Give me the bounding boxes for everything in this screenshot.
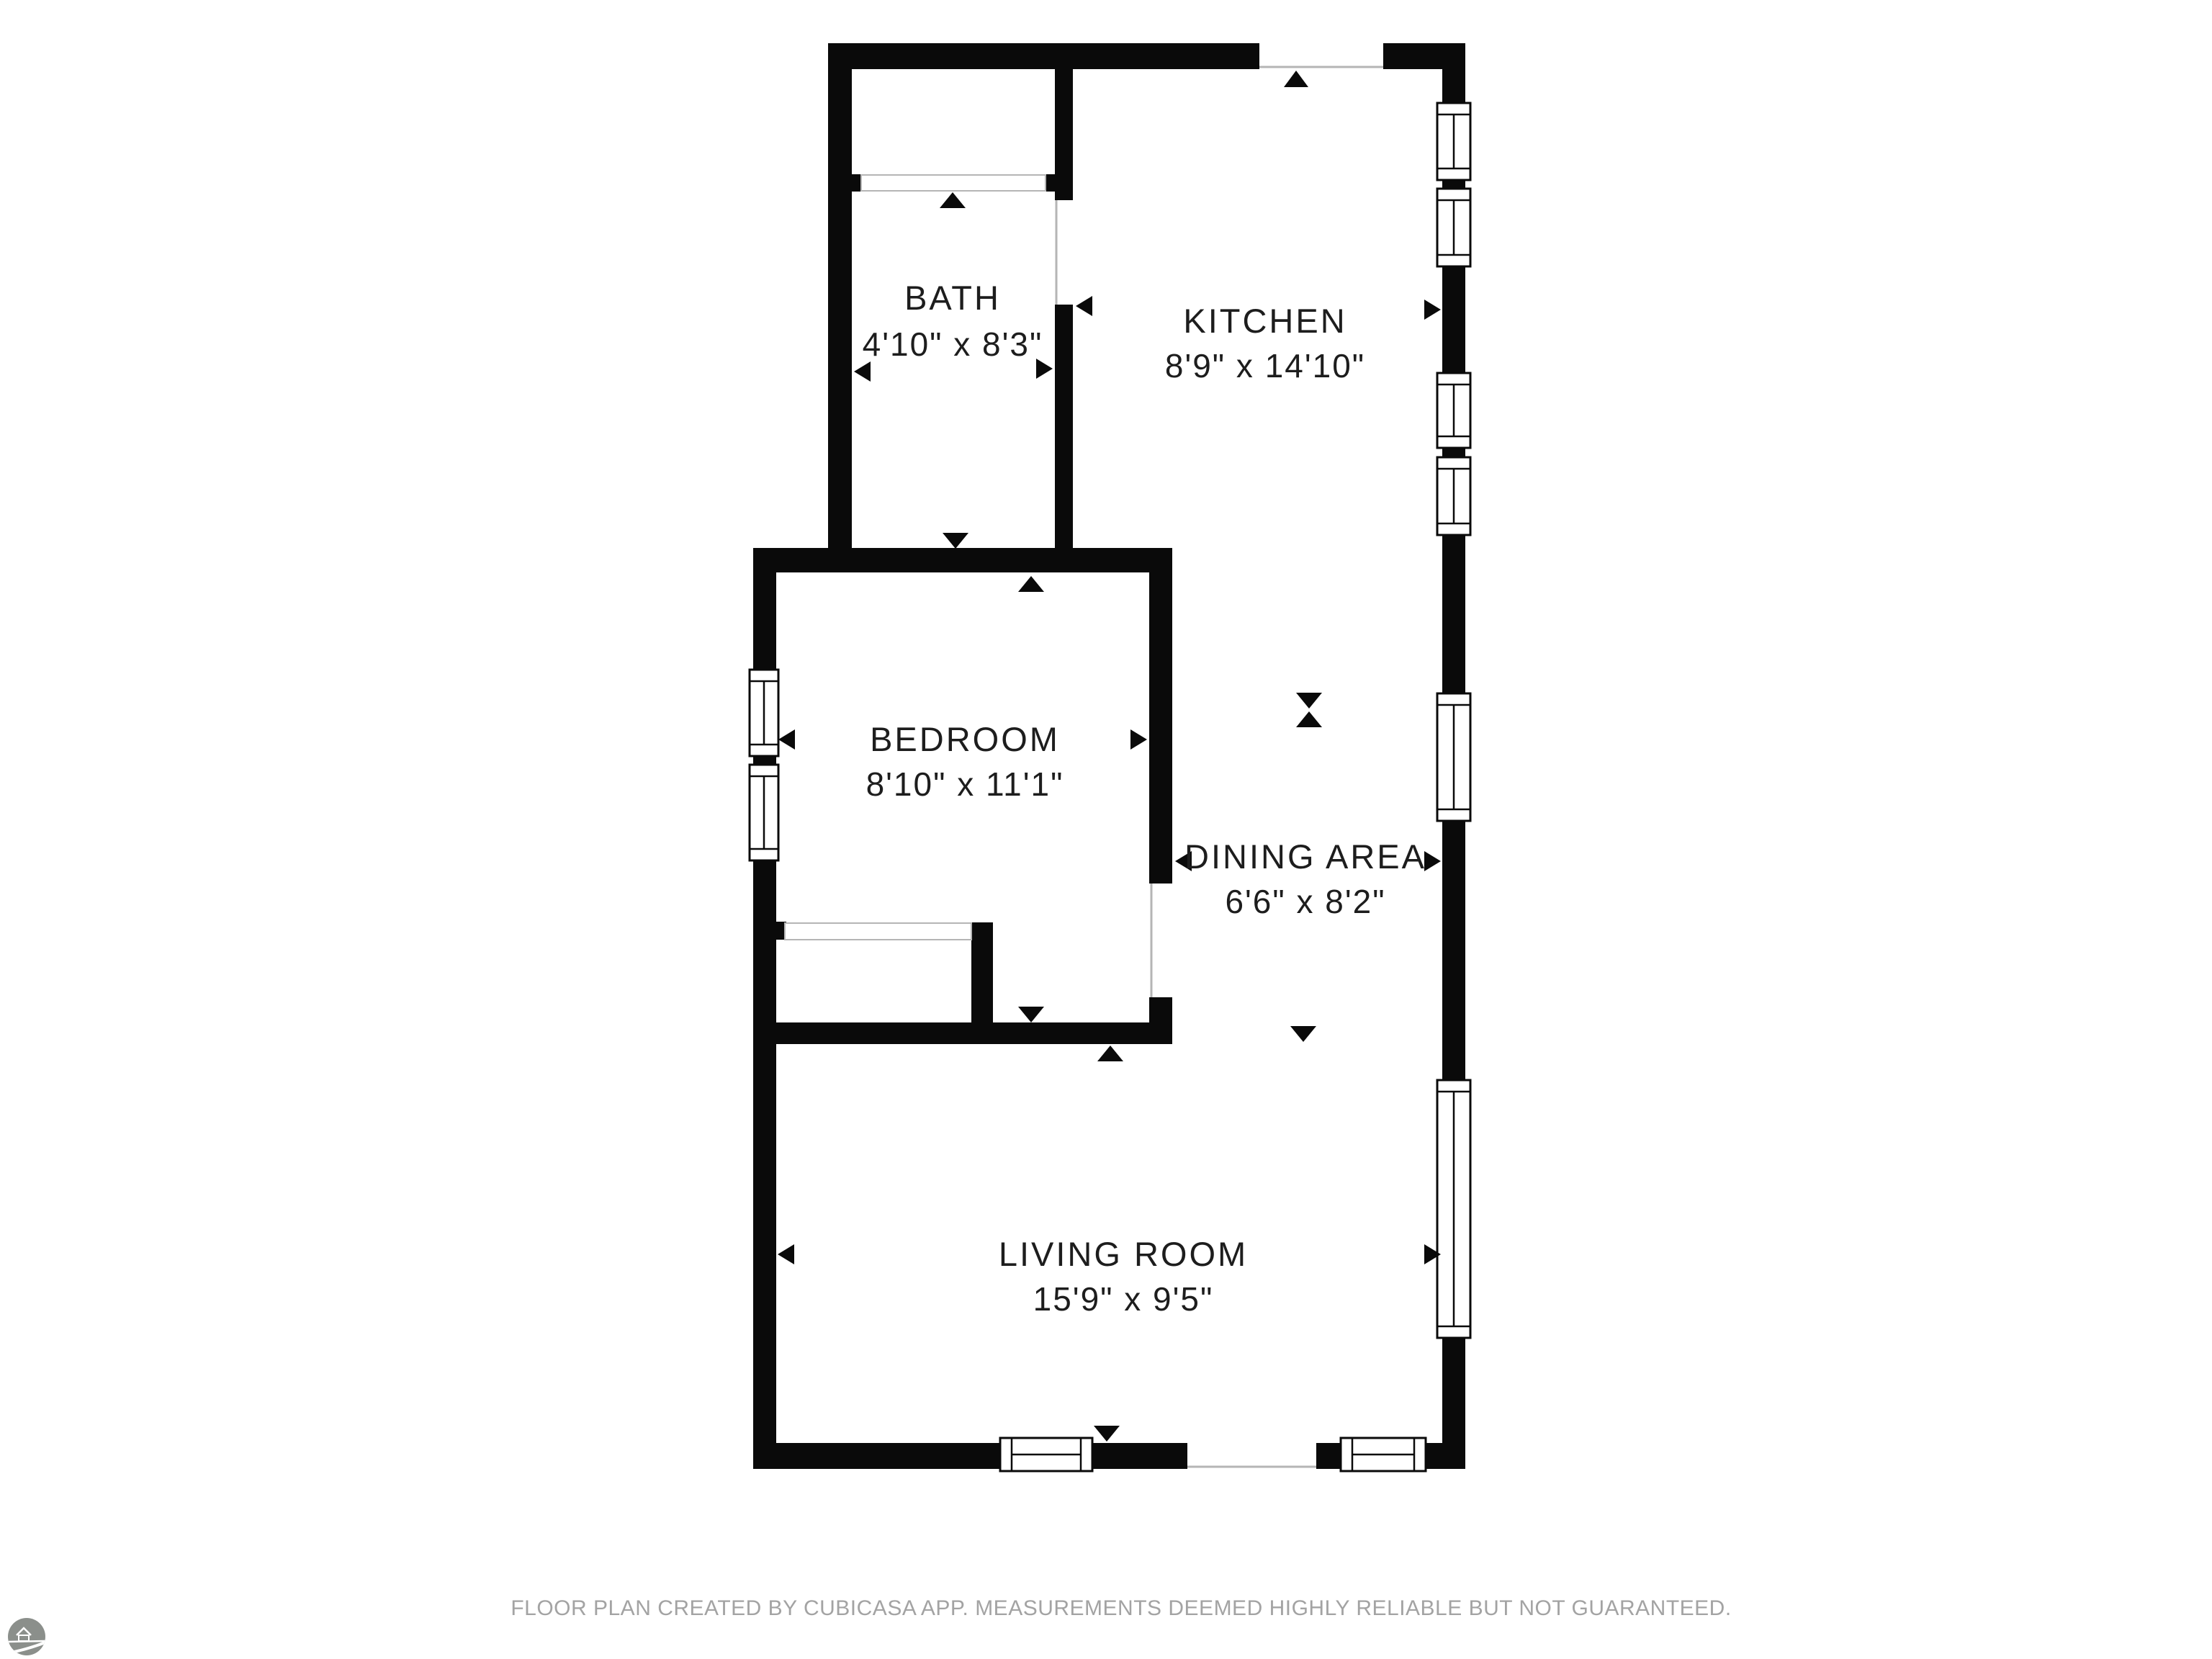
room-label-kitchen: KITCHEN [1183, 302, 1346, 340]
dimension-arrow-bedroom-left-icon [778, 729, 795, 750]
wall-bath-left [828, 43, 852, 572]
door-arrow-bedroom-top-icon [1018, 576, 1044, 592]
room-dims-kitchen: 8'9" x 14'10" [1165, 347, 1365, 385]
wall-bath-divider-left-stub [852, 174, 861, 192]
room-labels: BATH 4'10" x 8'3" KITCHEN 8'9" x 14'10" … [863, 279, 1426, 1318]
door-arrow-bottom-entry-icon [1094, 1426, 1120, 1442]
door-arrow-bath-closet-icon [940, 192, 966, 208]
dimension-arrow-living-left-icon [778, 1244, 794, 1264]
wall-bedroom-bottom [753, 1022, 1172, 1044]
door-arrow-bath-entry-icon [943, 533, 968, 549]
wall-bedroom-top [753, 548, 1172, 572]
window-living-bottom-2 [1341, 1438, 1426, 1471]
window-bedroom-left-1 [750, 670, 778, 756]
window-living-bottom-1 [1000, 1438, 1092, 1471]
dimension-arrow-bedroom-right-icon [1130, 729, 1147, 750]
zone-divider-dining-living-icon [1290, 1026, 1316, 1042]
floor-plan-canvas: BATH 4'10" x 8'3" KITCHEN 8'9" x 14'10" … [0, 0, 2212, 1659]
wall-bottom-left-segment [753, 1443, 1187, 1469]
room-dims-dining-area: 6'6" x 8'2" [1225, 883, 1385, 920]
window-kitchen-right-2 [1437, 189, 1470, 266]
dimension-arrow-kitchen-left-icon [1076, 296, 1092, 316]
window-kitchen-right-1 [1437, 103, 1470, 180]
window-living-right [1437, 1080, 1470, 1338]
zone-divider-kitchen-dining-down-icon [1296, 693, 1322, 709]
room-label-bath: BATH [904, 279, 1001, 317]
wall-closet-right [971, 922, 993, 1044]
cubicasa-logo-icon [6, 1618, 46, 1655]
window-kitchen-right-3 [1437, 373, 1470, 448]
door-arrow-living-top-icon [1097, 1046, 1123, 1061]
room-label-dining-area: DINING AREA [1184, 837, 1426, 876]
wall-bedroom-right-upper [1149, 572, 1172, 884]
door-arrow-bedroom-bottom-icon [1018, 1007, 1044, 1022]
wall-bath-kitchen-upper [1055, 69, 1073, 200]
door-arrow-top-entry-icon [1284, 71, 1308, 87]
logo-horizon-line [9, 1641, 46, 1642]
wall-bath-kitchen-lower [1055, 305, 1073, 548]
room-dims-bath: 4'10" x 8'3" [863, 325, 1043, 363]
room-dims-living-room: 15'9" x 9'5" [1033, 1280, 1214, 1318]
floor-plan-page: BATH 4'10" x 8'3" KITCHEN 8'9" x 14'10" … [0, 0, 2212, 1659]
sliding-door-bedroom-closet [785, 923, 971, 940]
footer-disclaimer: FLOOR PLAN CREATED BY CUBICASA APP. MEAS… [511, 1596, 1731, 1620]
dimension-arrow-bath-left-icon [854, 361, 871, 382]
window-kitchen-right-4 [1437, 457, 1470, 535]
window-dining-right [1437, 693, 1470, 821]
window-bedroom-left-2 [750, 765, 778, 860]
dimension-arrow-kitchen-right-icon [1424, 300, 1441, 320]
wall-top-left-segment [828, 43, 1259, 69]
sliding-door-bath-closet [861, 175, 1046, 191]
zone-divider-kitchen-dining-up-icon [1296, 711, 1322, 727]
wall-bath-divider-right-stub [1046, 174, 1055, 192]
room-label-bedroom: BEDROOM [870, 720, 1060, 758]
room-label-living-room: LIVING ROOM [999, 1235, 1248, 1273]
dimension-arrow-dining-right-icon [1424, 851, 1441, 871]
room-dims-bedroom: 8'10" x 11'1" [866, 765, 1064, 803]
